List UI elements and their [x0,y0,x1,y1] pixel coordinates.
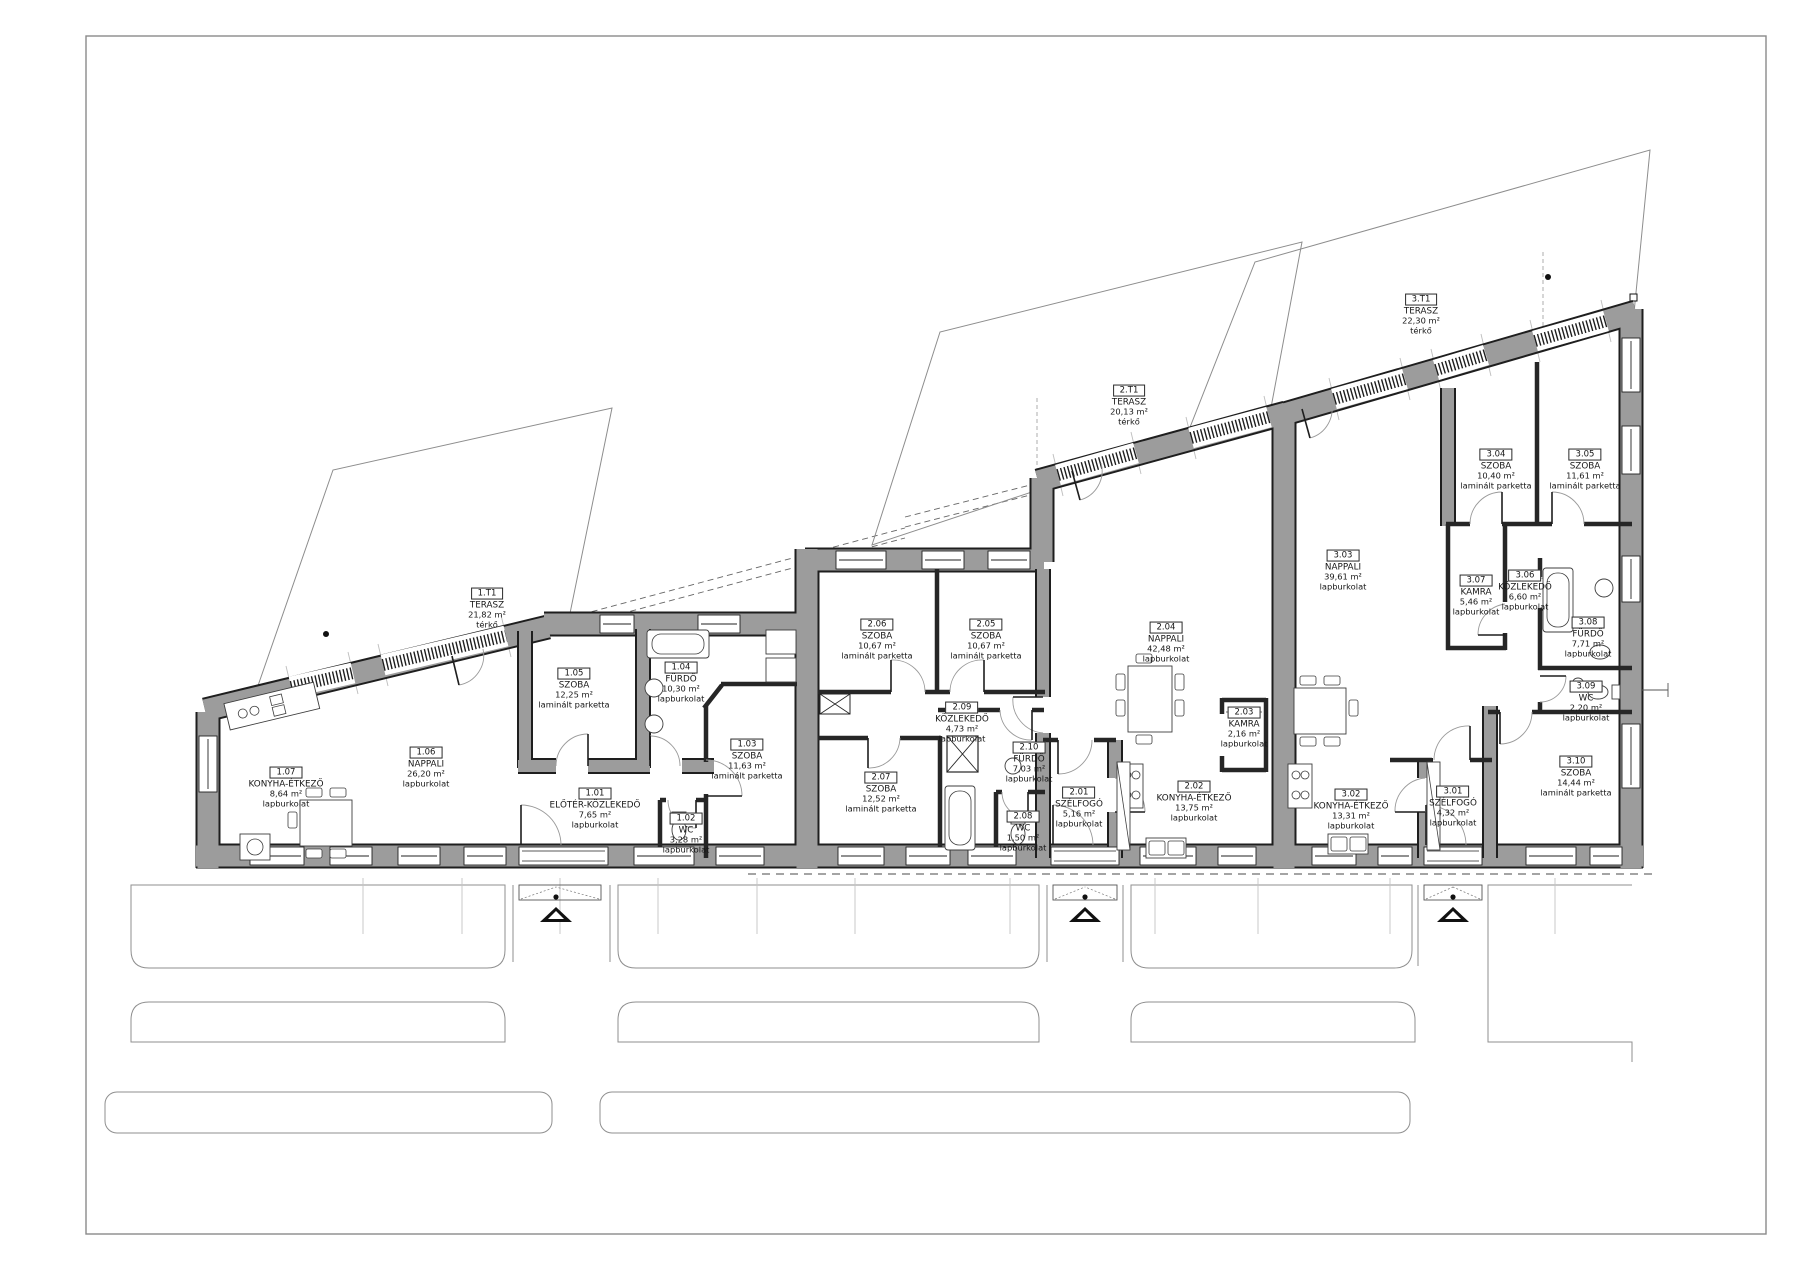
page-frame [86,36,1766,1234]
windows [199,338,1640,865]
walls-exterior [196,309,1643,868]
walls-exterior-edge [196,309,1643,868]
floor-plan-page: 1.01ELŐTÉR-KÖZLEKEDŐ7,65 m²lapburkolat1.… [0,0,1811,1280]
floor-plan-drawing [0,0,1811,1280]
furniture [224,568,1620,860]
